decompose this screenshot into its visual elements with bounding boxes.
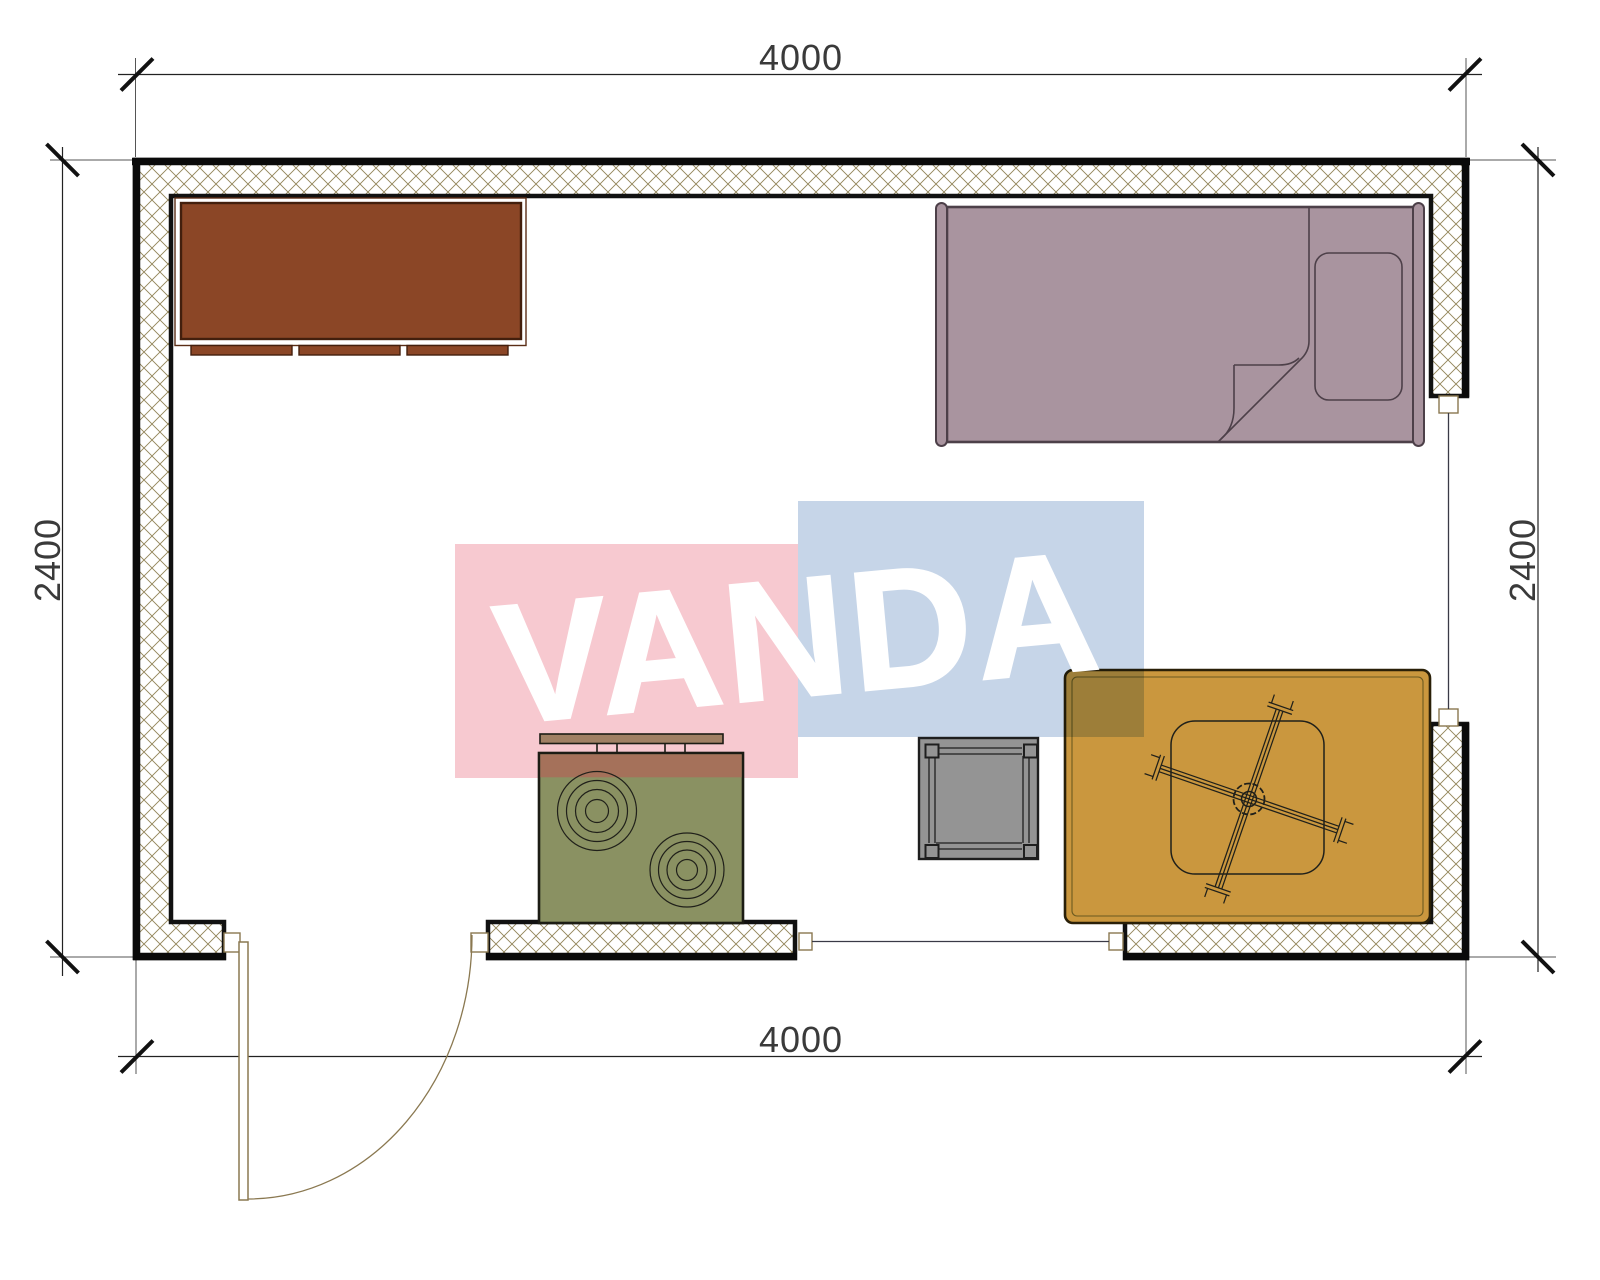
svg-text:4000: 4000 bbox=[759, 1019, 843, 1060]
svg-text:2400: 2400 bbox=[27, 518, 68, 602]
svg-text:4000: 4000 bbox=[759, 37, 843, 78]
svg-text:2400: 2400 bbox=[1502, 518, 1543, 602]
